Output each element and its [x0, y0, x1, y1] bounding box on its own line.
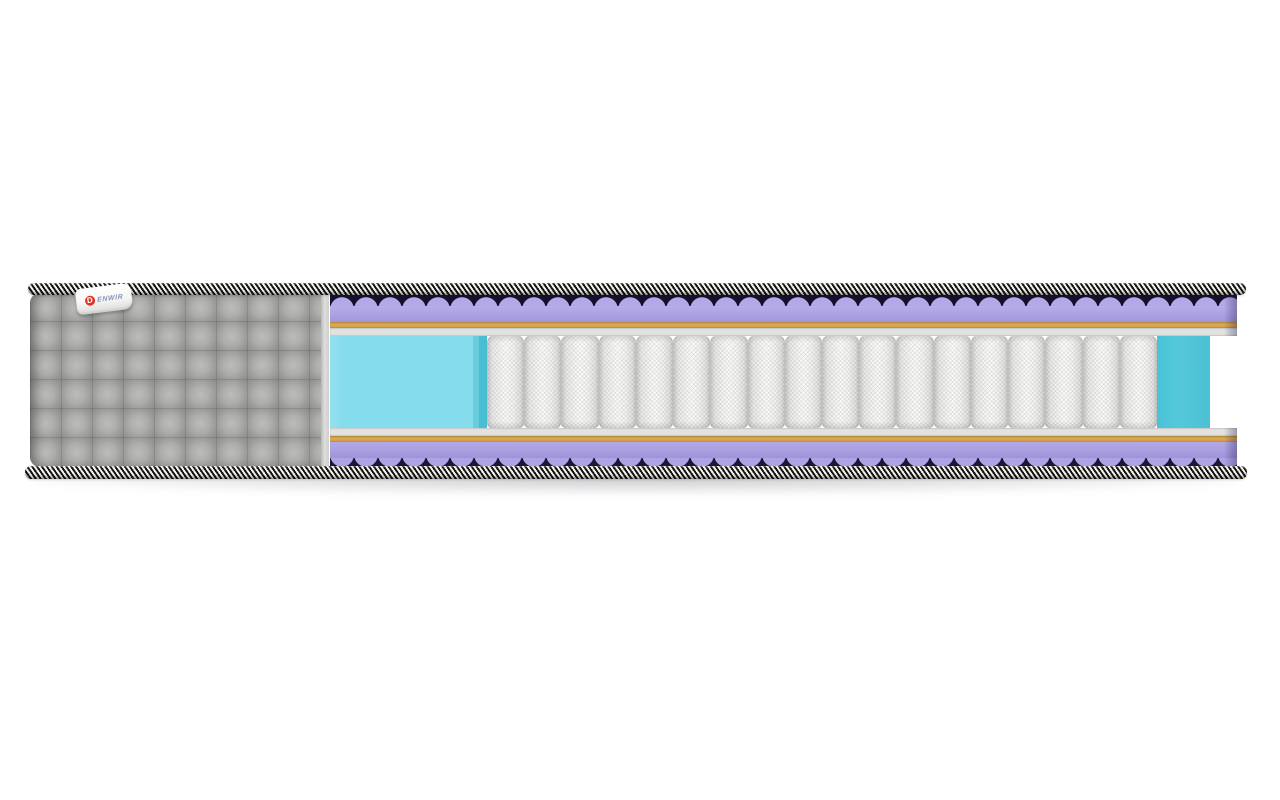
spring-coil [822, 336, 859, 428]
spring-coil [1083, 336, 1120, 428]
product-backdrop: D ENWIR [0, 0, 1280, 800]
spring-coil [748, 336, 785, 428]
spring-coil [1008, 336, 1045, 428]
quilted-cover [30, 293, 326, 467]
slab-right-face-top [1224, 294, 1237, 336]
brand-label: ENWIR [97, 293, 123, 303]
spring-coil [1045, 336, 1082, 428]
wave-foam-top [330, 294, 1237, 306]
spring-coil [561, 336, 598, 428]
side-foam-left [330, 336, 487, 428]
spring-coil [636, 336, 673, 428]
purple-foam-bottom [330, 442, 1237, 458]
spring-coil [934, 336, 971, 428]
spring-coil [785, 336, 822, 428]
spring-coil [1120, 336, 1157, 428]
edge-tape-top [28, 283, 1246, 295]
cover-cut-edge [321, 293, 329, 467]
spring-coil [673, 336, 710, 428]
spring-coil [487, 336, 524, 428]
spring-coil [710, 336, 747, 428]
brand-logo-icon: D [84, 295, 95, 306]
felt-pad-bottom [330, 428, 1237, 436]
spring-coil [896, 336, 933, 428]
spring-coil [599, 336, 636, 428]
spring-coil [524, 336, 561, 428]
side-foam-right [1157, 336, 1210, 428]
slab-right-face-bottom [1224, 428, 1237, 468]
spring-coil [971, 336, 1008, 428]
felt-pad-top [330, 328, 1237, 336]
purple-foam-top [330, 306, 1237, 322]
edge-tape-bottom [25, 466, 1247, 479]
pocket-springs [487, 336, 1157, 428]
spring-coil [859, 336, 896, 428]
